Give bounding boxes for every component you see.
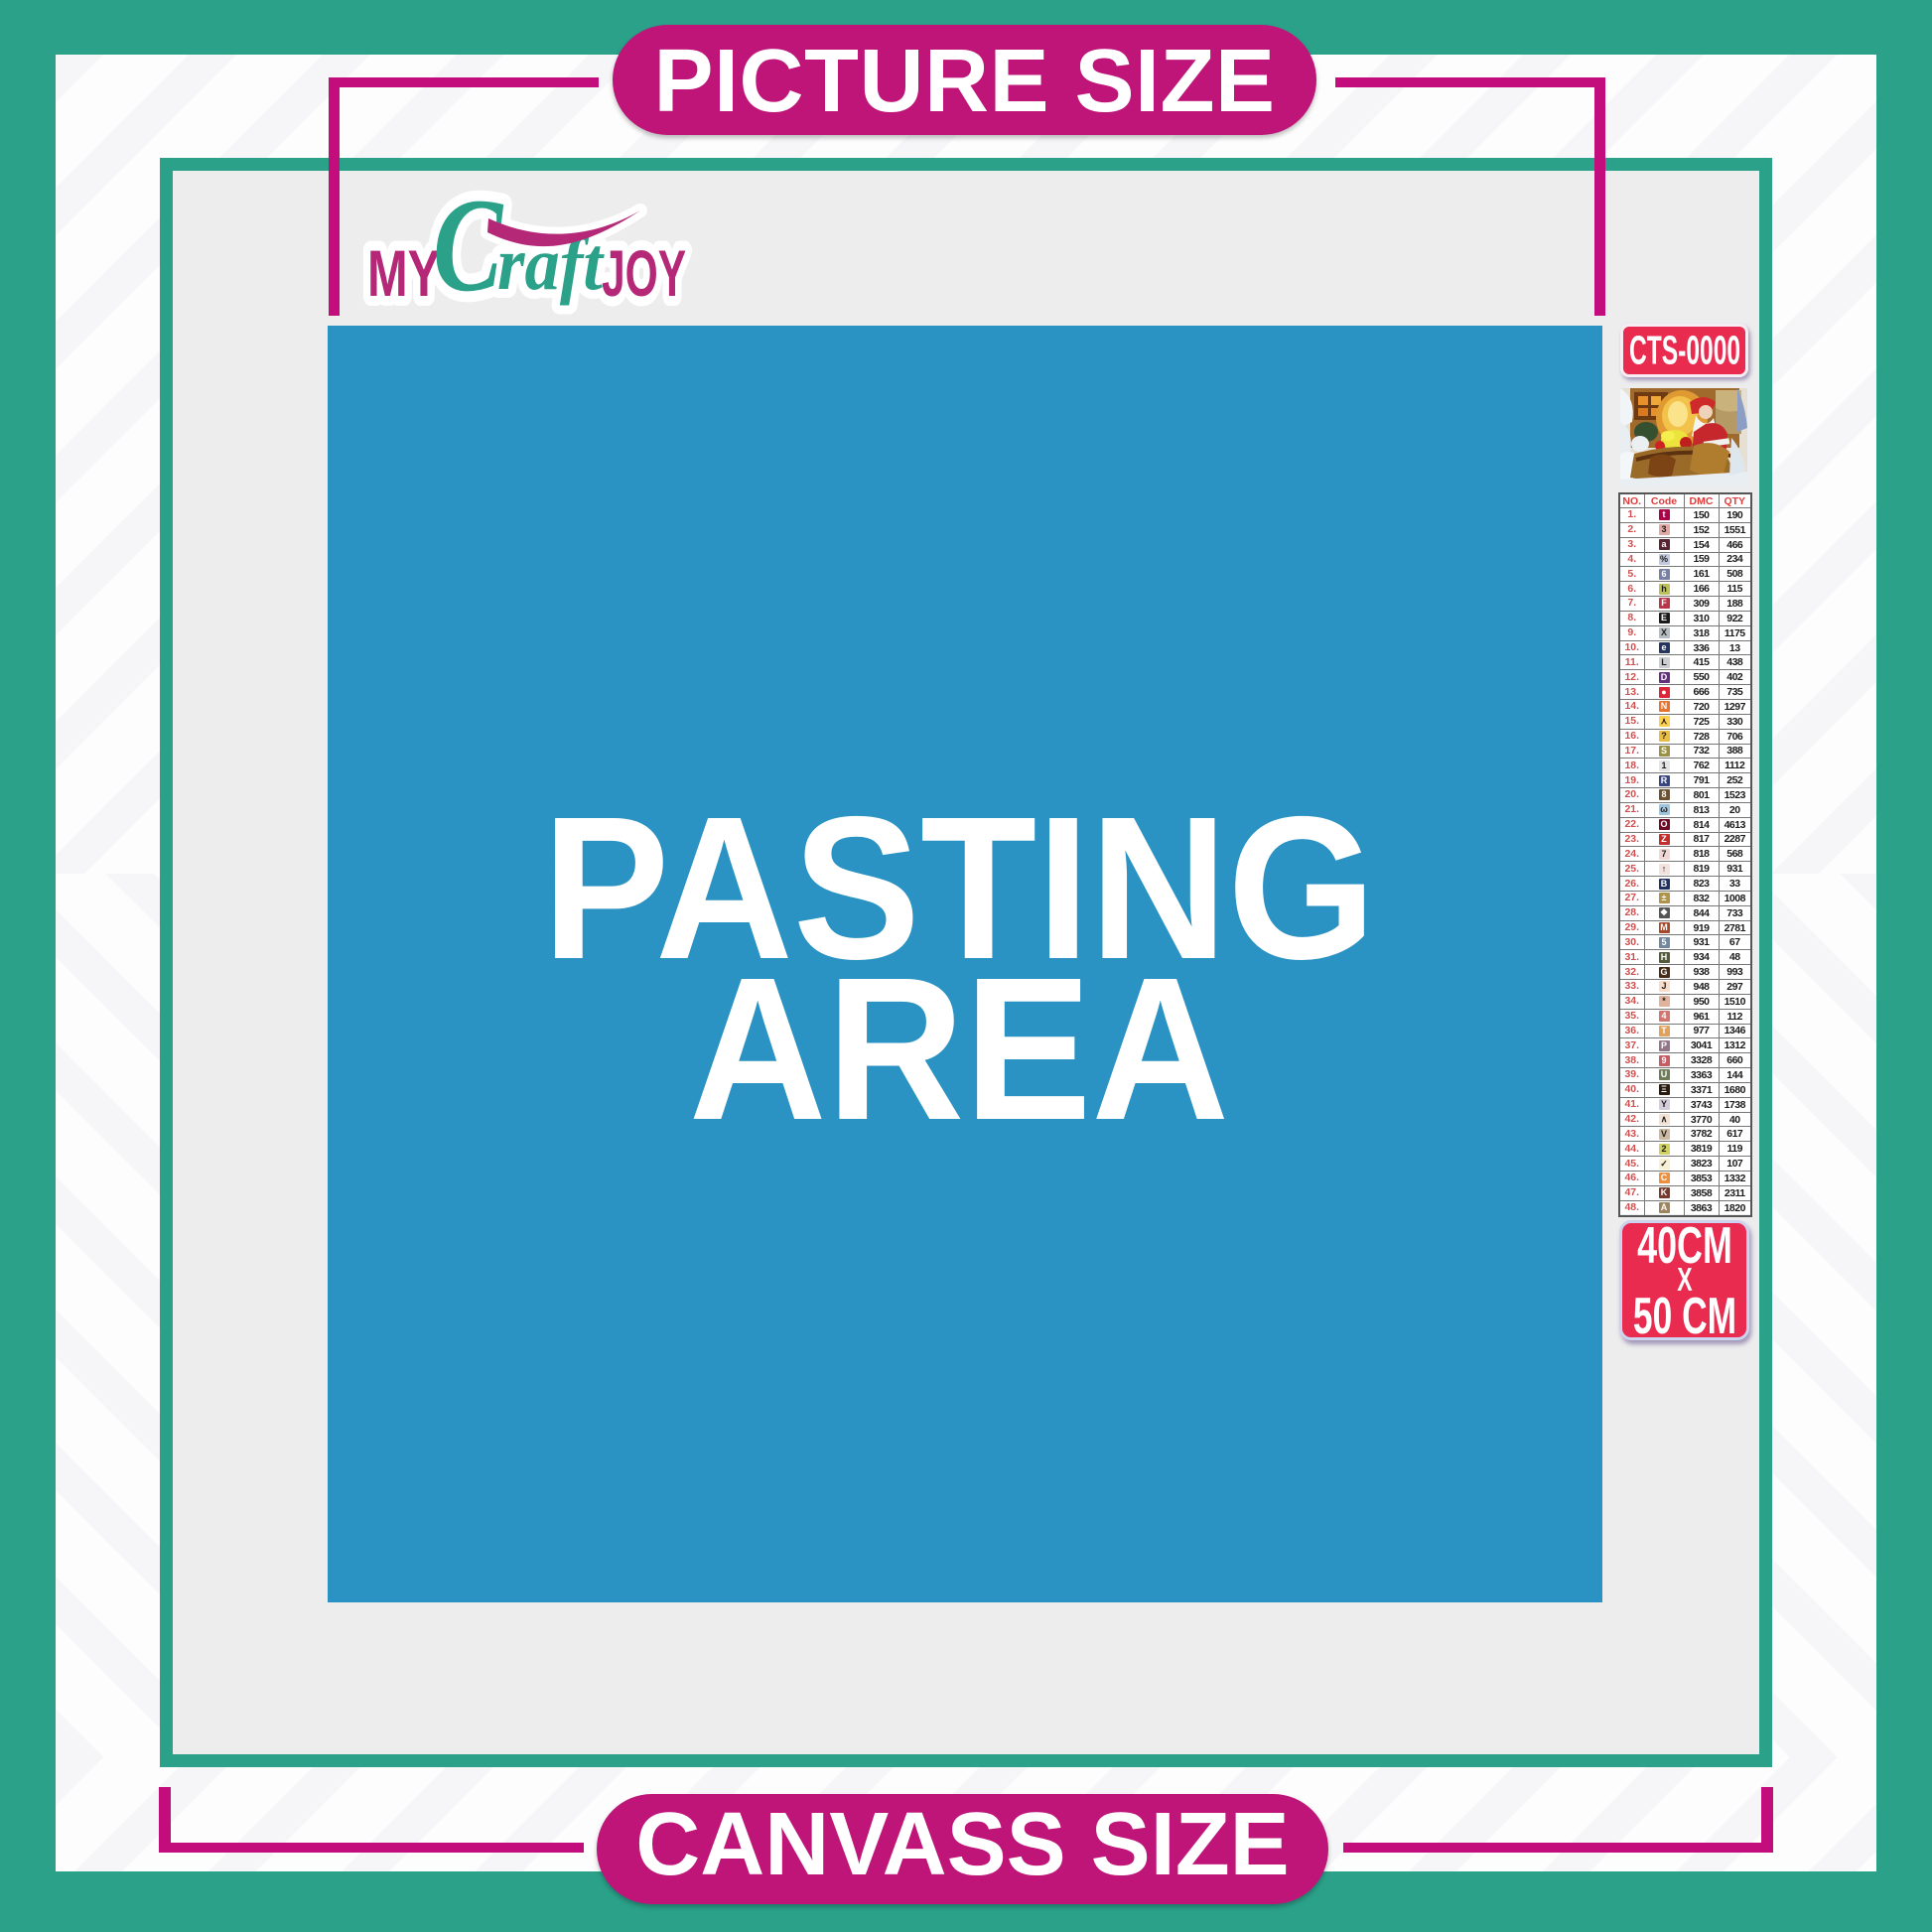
svg-text:MY: MY xyxy=(367,237,440,311)
svg-text:C: C xyxy=(433,181,503,320)
svg-text:JOY: JOY xyxy=(602,237,686,311)
